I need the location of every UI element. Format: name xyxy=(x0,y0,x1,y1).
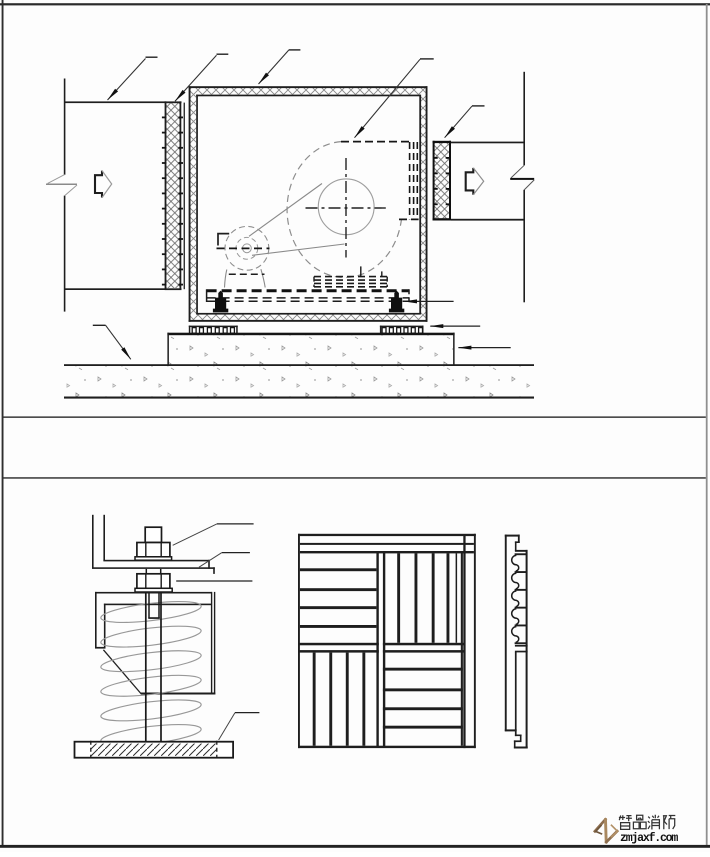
svg-text:zmjaxf.com: zmjaxf.com xyxy=(620,832,678,845)
